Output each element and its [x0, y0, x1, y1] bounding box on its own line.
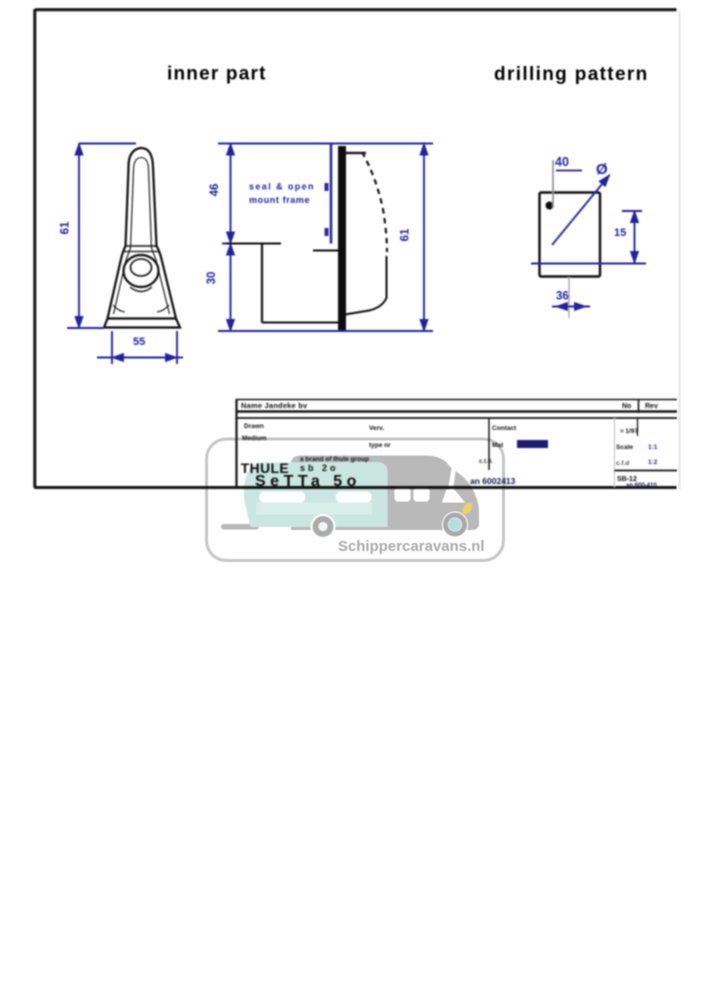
svg-text:61: 61 [400, 228, 412, 241]
svg-text:an 6002413: an 6002413 [470, 476, 516, 486]
svg-text:1:2: 1:2 [648, 459, 658, 466]
svg-text:≈ 1/97: ≈ 1/97 [620, 428, 638, 435]
svg-text:55: 55 [133, 336, 145, 348]
svg-text:Schippercaravans.nl: Schippercaravans.nl [338, 539, 485, 555]
svg-text:c.f.d: c.f.d [616, 460, 629, 467]
svg-text:c.t.d.: c.t.d. [479, 459, 493, 465]
svg-text:No: No [622, 403, 631, 410]
svg-text:61: 61 [60, 221, 72, 234]
svg-text:1:1: 1:1 [648, 444, 658, 451]
svg-text:40: 40 [555, 155, 569, 169]
svg-text:Name Jandeke bv: Name Jandeke bv [241, 401, 308, 410]
svg-text:Verv.: Verv. [369, 425, 384, 432]
svg-text:46: 46 [209, 184, 221, 197]
svg-text:an 600-410: an 600-410 [626, 483, 657, 489]
svg-text:Contact: Contact [492, 425, 517, 432]
svg-text:mount frame: mount frame [249, 195, 310, 205]
svg-text:Drawn: Drawn [244, 423, 264, 430]
svg-text:type nr: type nr [369, 442, 391, 449]
svg-text:15: 15 [614, 227, 626, 239]
svg-text:Ø: Ø [596, 161, 608, 178]
svg-text:drilling pattern: drilling pattern [494, 64, 649, 85]
svg-text:30: 30 [206, 272, 218, 285]
svg-text:36: 36 [556, 291, 569, 303]
svg-text:SB-12: SB-12 [617, 476, 637, 483]
svg-text:Scale: Scale [616, 444, 633, 451]
svg-text:Rev: Rev [645, 403, 658, 410]
svg-text:inner part: inner part [167, 64, 267, 85]
svg-text:seal & open: seal & open [249, 182, 315, 192]
